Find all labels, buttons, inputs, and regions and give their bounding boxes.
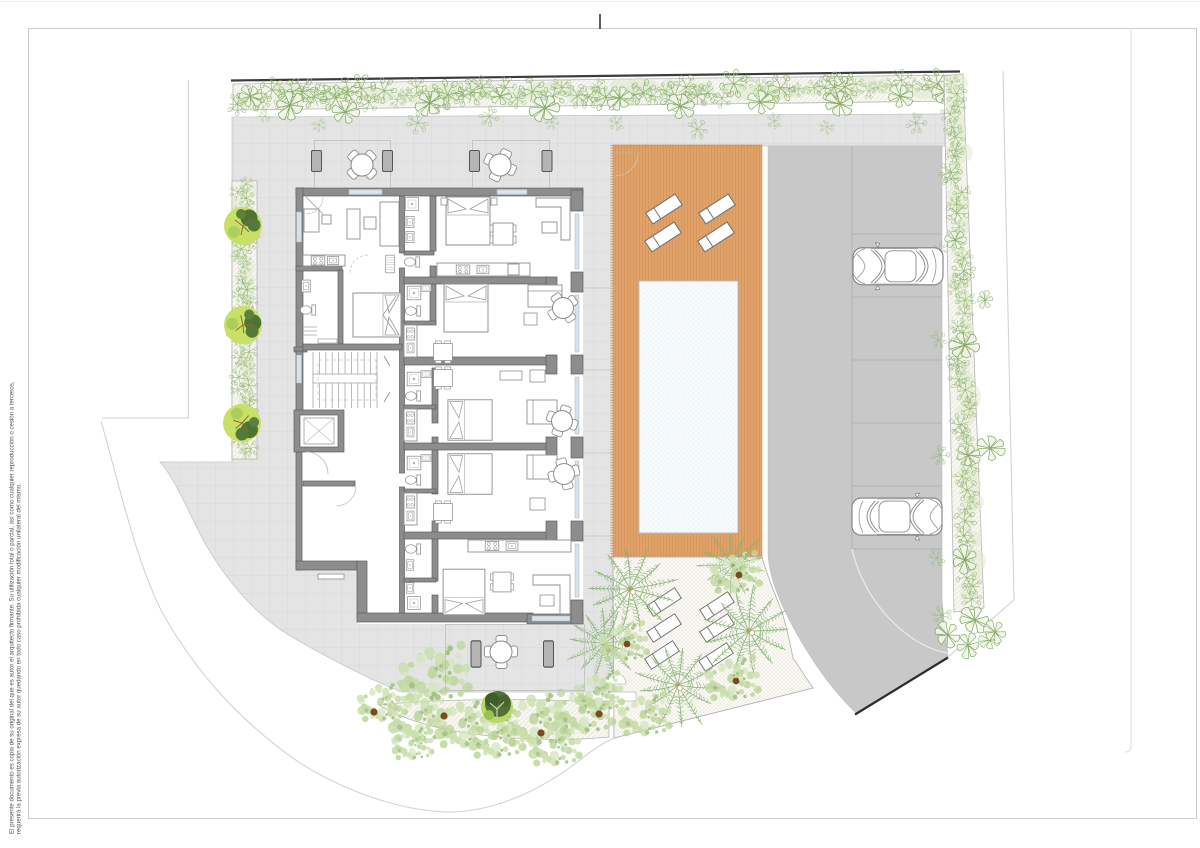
svg-text:requerirá la previa autorizaci: requerirá la previa autorización expresa…: [16, 483, 23, 834]
svg-text:El presente documento es copia: El presente documento es copia de su ori…: [9, 381, 16, 834]
